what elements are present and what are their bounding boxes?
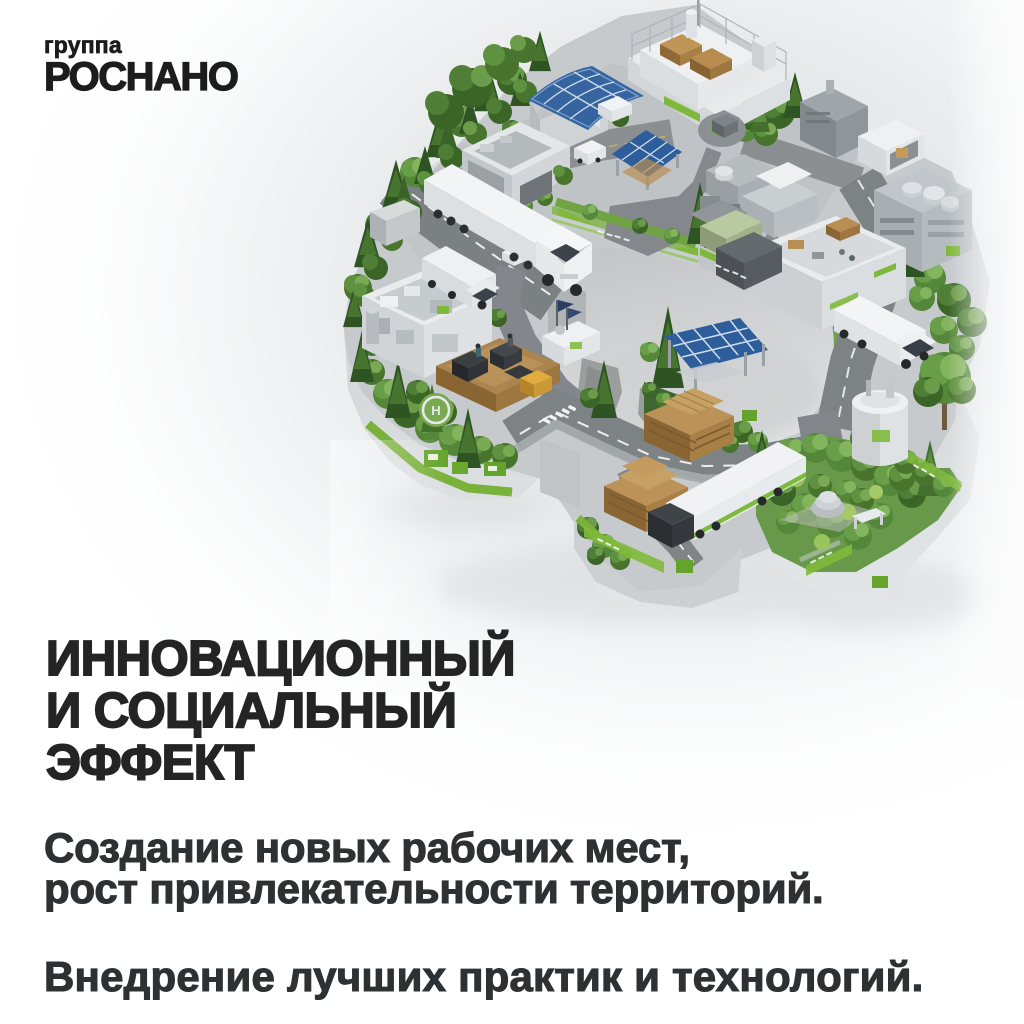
svg-text:H: H (431, 403, 440, 418)
